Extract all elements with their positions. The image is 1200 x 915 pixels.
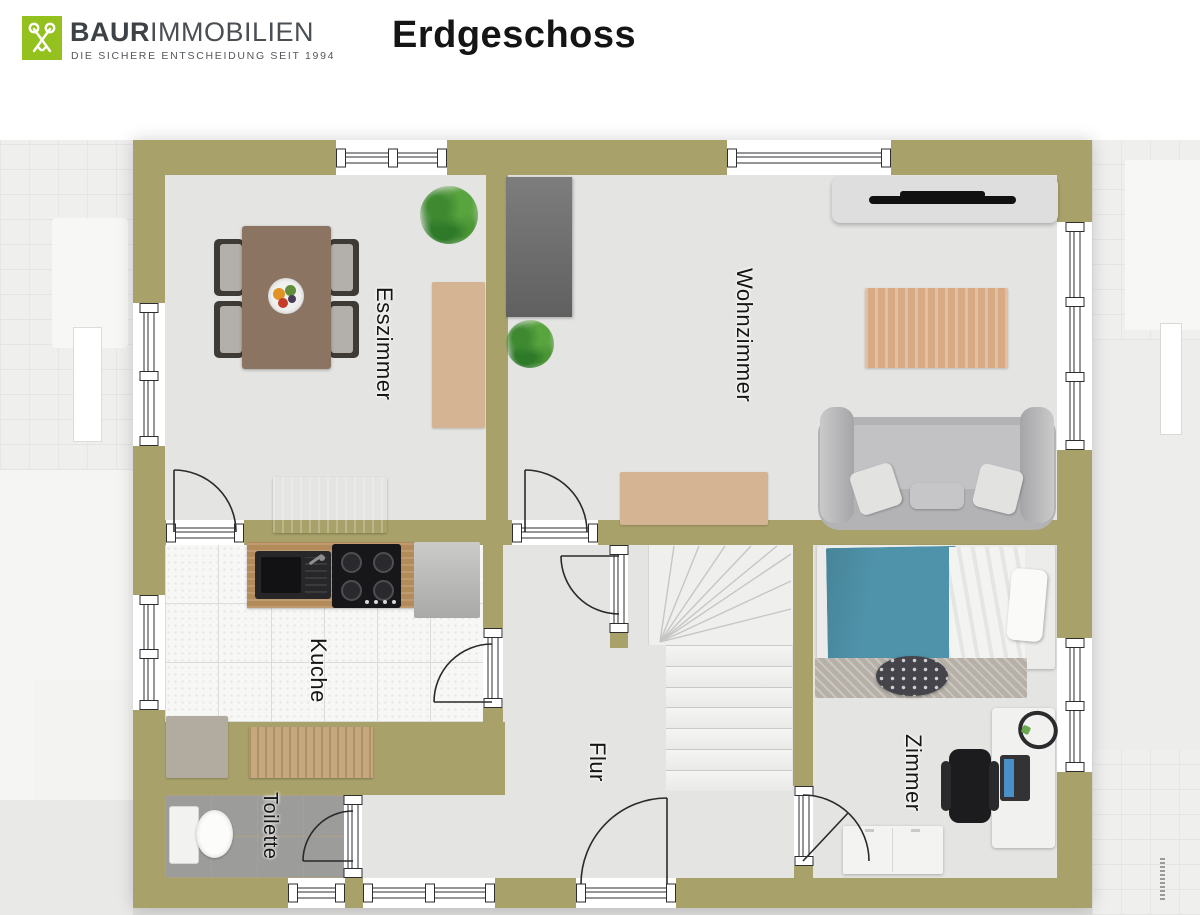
staircase-winder: [648, 545, 793, 645]
pouf: [876, 656, 948, 696]
sideboard-esszimmer: [432, 282, 485, 428]
window-left-esszimmer: [133, 303, 165, 446]
faded-wardrobe-right: [1125, 160, 1200, 330]
window-right-wohnzimmer: [1057, 222, 1092, 450]
doormat: [166, 716, 228, 778]
sideboard-wohnzimmer: [620, 472, 768, 525]
door-opening-zimmer: [794, 786, 813, 866]
office-chair: [941, 745, 999, 827]
window-cap: [140, 595, 159, 605]
dining-chair: [329, 301, 359, 358]
door-cap: [794, 856, 813, 866]
door-cap: [588, 523, 598, 542]
chair-seat: [331, 244, 353, 291]
wall-top: [133, 140, 1092, 175]
room-label-wohnzimmer: Wohnzimmer: [731, 268, 757, 402]
brand-tagline: DIE SICHERE ENTSCHEIDUNG SEIT 1994: [71, 50, 335, 62]
window-right-zimmer: [1057, 638, 1092, 772]
door-cap: [166, 523, 176, 542]
window-cap: [288, 884, 298, 903]
door-sill: [348, 797, 359, 876]
door-cap: [666, 884, 676, 903]
stove-knob: [392, 600, 396, 604]
bed: [817, 545, 1055, 669]
burner-icon: [341, 580, 362, 601]
window-bottom-flur: [363, 878, 495, 908]
chair-seat: [220, 244, 242, 291]
door-cap: [344, 868, 363, 878]
window-glazing: [1069, 224, 1080, 448]
wall-left: [133, 175, 165, 878]
window-top-wohnzimmer: [727, 140, 891, 175]
room-label-toilette: Toilette: [258, 792, 281, 859]
window-cap: [140, 436, 159, 446]
stove-knob: [374, 600, 378, 604]
stair-tread: [666, 666, 792, 688]
window-cap: [1065, 222, 1084, 232]
window-left-kueche: [133, 595, 165, 710]
plant-icon: [506, 320, 554, 368]
door-cap: [484, 698, 503, 708]
plant-icon: [420, 186, 478, 244]
dresser-zimmer: [843, 826, 943, 874]
burner-icon: [341, 552, 362, 573]
door-sill: [488, 630, 499, 706]
stair-tread: [666, 749, 792, 771]
door-sill: [514, 527, 596, 538]
brand-wordmark: BAURIMMOBILIEN: [70, 19, 314, 46]
chair-back: [949, 749, 991, 823]
window-cap: [425, 884, 435, 903]
stove-knob: [365, 600, 369, 604]
sofa-pillow: [910, 483, 964, 509]
room-label-flur: Flur: [584, 742, 610, 782]
bed-pillow: [1006, 568, 1048, 643]
wall-stairs-right: [793, 545, 813, 786]
brand-secondary: IMMOBILIEN: [150, 17, 314, 47]
door-sill: [614, 547, 625, 631]
window-cap: [727, 148, 737, 167]
door-opening-esszimmer: [166, 520, 244, 545]
chair-seat: [220, 306, 242, 353]
dresser-divider: [892, 828, 893, 872]
window-cap: [336, 148, 346, 167]
faded-window-left: [73, 327, 102, 442]
sofa: [818, 407, 1056, 530]
window-cap: [140, 303, 159, 313]
door-opening-toilette: [344, 795, 362, 878]
window-cap: [881, 148, 891, 167]
wall-stair-door-stub: [610, 633, 628, 648]
window-cap: [140, 649, 159, 659]
faded-room-right: [1092, 340, 1200, 750]
toilet-bowl: [196, 810, 233, 858]
chair-arm: [989, 761, 999, 811]
chair-arm: [941, 761, 951, 811]
door-cap: [576, 884, 586, 903]
door-sill: [168, 527, 242, 538]
fruit-bowl: [268, 278, 304, 314]
door-cap: [794, 786, 813, 796]
stove-knob: [383, 600, 387, 604]
door-opening-entrance: [576, 878, 676, 908]
crossed-keys-icon: [22, 16, 62, 60]
sofa-arm: [1020, 407, 1054, 523]
watermark-text: [1160, 858, 1165, 900]
stair-tread: [666, 728, 792, 750]
window-glazing: [729, 152, 889, 163]
laptop-icon: [1000, 755, 1030, 801]
roof-tiles-right-bottom: [1092, 750, 1200, 915]
toilet-tank: [169, 806, 199, 864]
stove: [332, 544, 401, 608]
laptop-screen: [1004, 759, 1014, 797]
door-cap: [512, 523, 522, 542]
burner-icon: [373, 552, 394, 573]
door-opening-stairs: [610, 545, 628, 633]
stair-tread: [666, 770, 792, 791]
brand-logo: [22, 16, 62, 60]
headphone-pad: [1021, 725, 1032, 736]
window-cap: [140, 700, 159, 710]
ground-strip-bottom: [133, 908, 1092, 915]
dining-chair: [214, 301, 244, 358]
window-cap: [363, 884, 373, 903]
window-cap: [1065, 297, 1084, 307]
window-cap: [437, 148, 447, 167]
dining-chair: [214, 239, 244, 296]
dresser-handle: [865, 829, 874, 832]
fruit: [288, 295, 296, 303]
door-sill: [578, 888, 674, 899]
window-cap: [1065, 701, 1084, 711]
stair-tread: [666, 687, 792, 708]
window-bottom-toilette: [288, 878, 345, 908]
faded-floor-left: [0, 800, 133, 915]
kitchen-sink: [255, 551, 331, 599]
dining-table: [242, 226, 331, 369]
dining-chair: [329, 239, 359, 296]
tv-lowboard: [832, 177, 1058, 223]
door-sill: [798, 788, 809, 864]
door-cap: [344, 795, 363, 805]
door-cap: [610, 623, 629, 633]
door-opening-wohnzimmer: [512, 520, 598, 545]
door-cap: [234, 523, 244, 542]
room-label-kueche: Kuche: [305, 638, 331, 703]
burner-icon: [373, 580, 394, 601]
kitchen-cabinet: [414, 542, 480, 618]
dresser-handle: [911, 829, 920, 832]
bed-duvet-teal: [826, 546, 958, 668]
tv-icon: [900, 191, 985, 198]
chair-seat: [331, 306, 353, 353]
room-label-zimmer: Zimmer: [900, 734, 926, 812]
floor-plan-page: BAURIMMOBILIEN DIE SICHERE ENTSCHEIDUNG …: [0, 0, 1200, 915]
sink-basin: [261, 557, 301, 593]
window-cap: [485, 884, 495, 903]
door-opening-kueche: [483, 628, 503, 708]
rug-wohnzimmer: [865, 288, 1008, 368]
sofa-arm: [820, 407, 854, 523]
window-cap: [1065, 440, 1084, 450]
cabinet-wohnzimmer: [506, 177, 572, 317]
brand-primary: BAUR: [70, 17, 150, 47]
window-cap: [388, 148, 398, 167]
faded-window-right: [1160, 323, 1182, 435]
window-cap: [1065, 372, 1084, 382]
fruit: [278, 298, 288, 308]
neighbor-plan-left: [0, 140, 133, 915]
window-cap: [1065, 762, 1084, 772]
room-label-esszimmer: Esszimmer: [371, 287, 397, 400]
stair-tread: [666, 707, 792, 729]
stair-tread: [666, 645, 792, 667]
door-cap: [610, 545, 629, 555]
wall-ess-wohn: [486, 175, 508, 520]
wooden-bench: [249, 727, 373, 778]
wall-zimmer-door-stub: [794, 866, 813, 878]
window-cap: [140, 371, 159, 381]
faucet-icon: [319, 555, 325, 561]
dresser-esszimmer: [273, 477, 387, 533]
door-cap: [484, 628, 503, 638]
window-cap: [335, 884, 345, 903]
window-cap: [1065, 638, 1084, 648]
page-title: Erdgeschoss: [392, 14, 636, 57]
window-top-esszimmer: [336, 140, 447, 175]
neighbor-plan-right: [1092, 140, 1200, 915]
